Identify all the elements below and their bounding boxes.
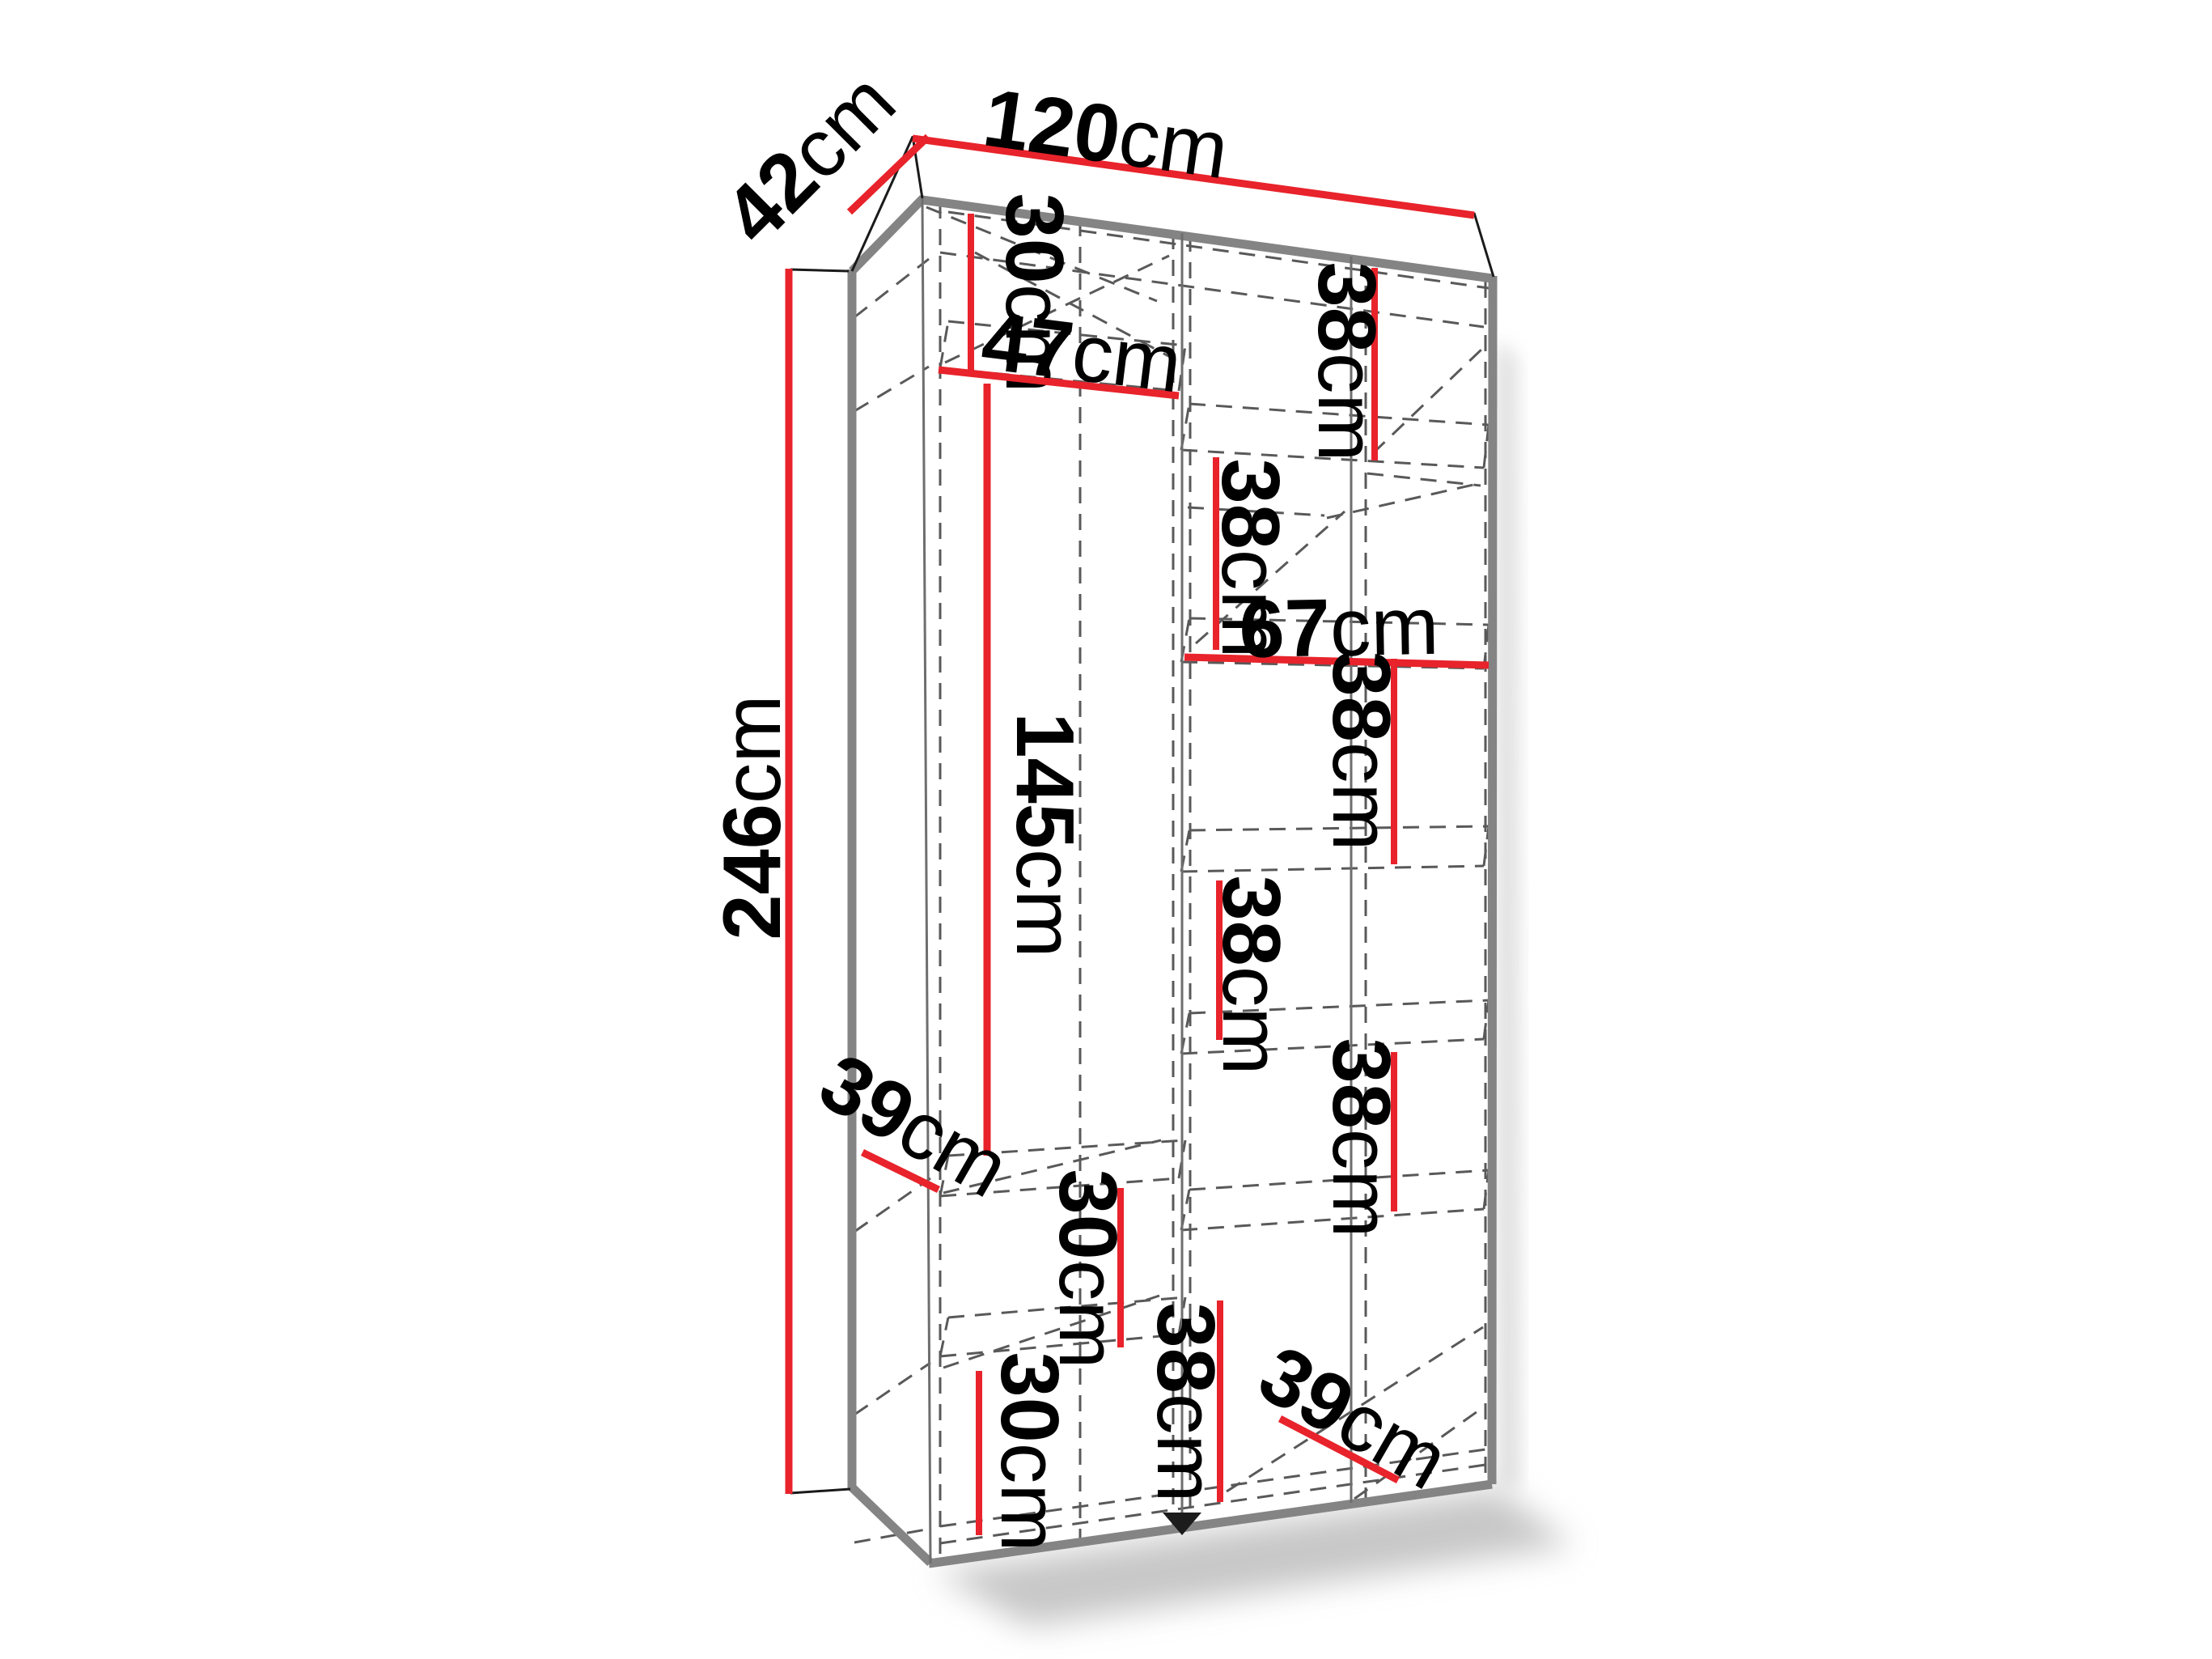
dimension-tick [790,269,849,271]
dimension-tick [790,1489,850,1493]
dimension-unit: cm [1316,1129,1406,1238]
dimension-unit: cm [1206,966,1296,1076]
dimension-unit: cm [1140,1394,1231,1503]
dimension-label-shelf-38-e: 38cm [1316,1038,1406,1238]
dimension-value: 38 [1140,1303,1231,1394]
cabinet-face-left [852,198,930,1564]
dimension-height-left: 246cm [707,269,798,1494]
dimension-label-shelf-145: 145cm [999,712,1090,957]
cabinet-shadow [1497,340,1519,1486]
dimension-shelf-38-e: 38cm [1316,1038,1406,1238]
dimension-value: 30 [989,193,1079,284]
wardrobe-diagram: 120cm42cm246cm30cm47cm145cm39cm30cm30cm3… [0,0,2212,1659]
dimension-value: 47 [977,295,1078,397]
dimension-value: 38 [1316,651,1406,742]
cabinet-outline-edge [1492,276,1493,1484]
dimension-unit: cm [1316,742,1406,851]
dimension-shelf-30-mid: 30cm [1042,1169,1133,1369]
dimension-value: 120 [978,72,1125,180]
dimension-shelf-38-d: 38cm [1206,876,1296,1076]
dimension-shelf-38-c: 38cm [1316,651,1406,864]
dimension-label-depth-top: 42cm [707,56,913,261]
dimension-shelf-38-f: 38cm [1140,1300,1231,1502]
dimension-value: 30 [1042,1169,1133,1260]
dimension-unit: cm [1301,353,1392,462]
dimension-label-shelf-30-mid: 30cm [1042,1169,1133,1369]
dimension-label-shelf-30-bot: 30cm [984,1352,1074,1552]
dimension-unit: cm [707,694,798,804]
dimension-label-shelf-38-f: 38cm [1140,1303,1231,1503]
dimension-value: 38 [1206,876,1296,966]
dimension-unit: cm [1067,307,1186,410]
dimension-unit: cm [984,1443,1074,1552]
dimension-unit: cm [1113,91,1234,197]
dimension-unit: cm [999,849,1090,958]
dimension-label-shelf-38-d: 38cm [1206,876,1296,1076]
dimension-label-height-left: 246cm [707,694,798,940]
dimension-label-shelf-38-a: 38cm [1301,262,1392,462]
diagram-canvas: 120cm42cm246cm30cm47cm145cm39cm30cm30cm3… [0,0,2212,1659]
dimension-value: 38 [1205,459,1295,549]
dimension-shelf-30-bot: 30cm [979,1352,1074,1552]
dimension-label-shelf-38-c: 38cm [1316,651,1406,851]
dimension-value: 145 [999,712,1090,849]
dimension-value: 38 [1301,262,1392,353]
dimension-value: 38 [1316,1038,1406,1129]
dimension-shelf-38-a: 38cm [1301,262,1392,462]
dimension-value: 246 [707,804,798,940]
dimension-value: 30 [984,1352,1074,1443]
